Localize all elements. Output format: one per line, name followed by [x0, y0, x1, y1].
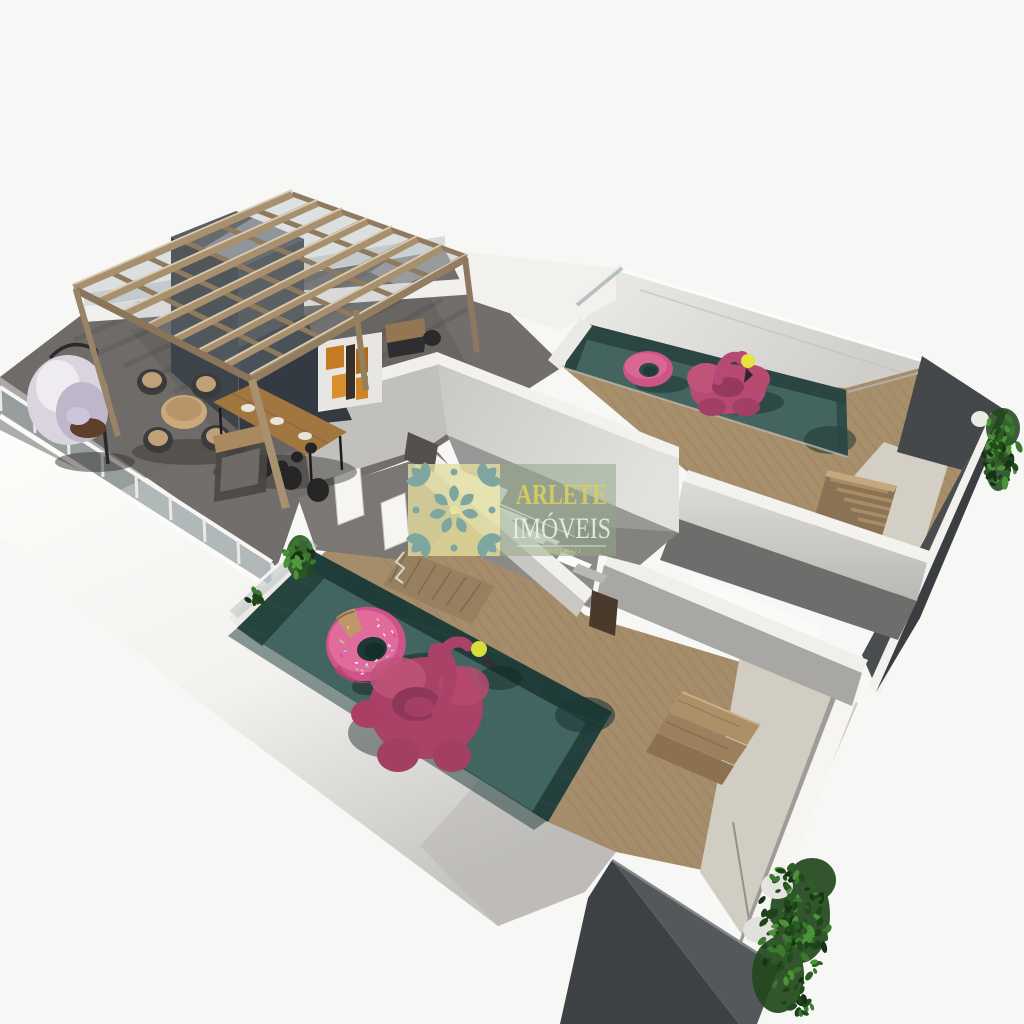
- svg-text:CRECI 4647J: CRECI 4647J: [541, 548, 581, 555]
- svg-text:ARLETE: ARLETE: [516, 480, 607, 511]
- svg-text:IMÓVEIS: IMÓVEIS: [512, 512, 611, 545]
